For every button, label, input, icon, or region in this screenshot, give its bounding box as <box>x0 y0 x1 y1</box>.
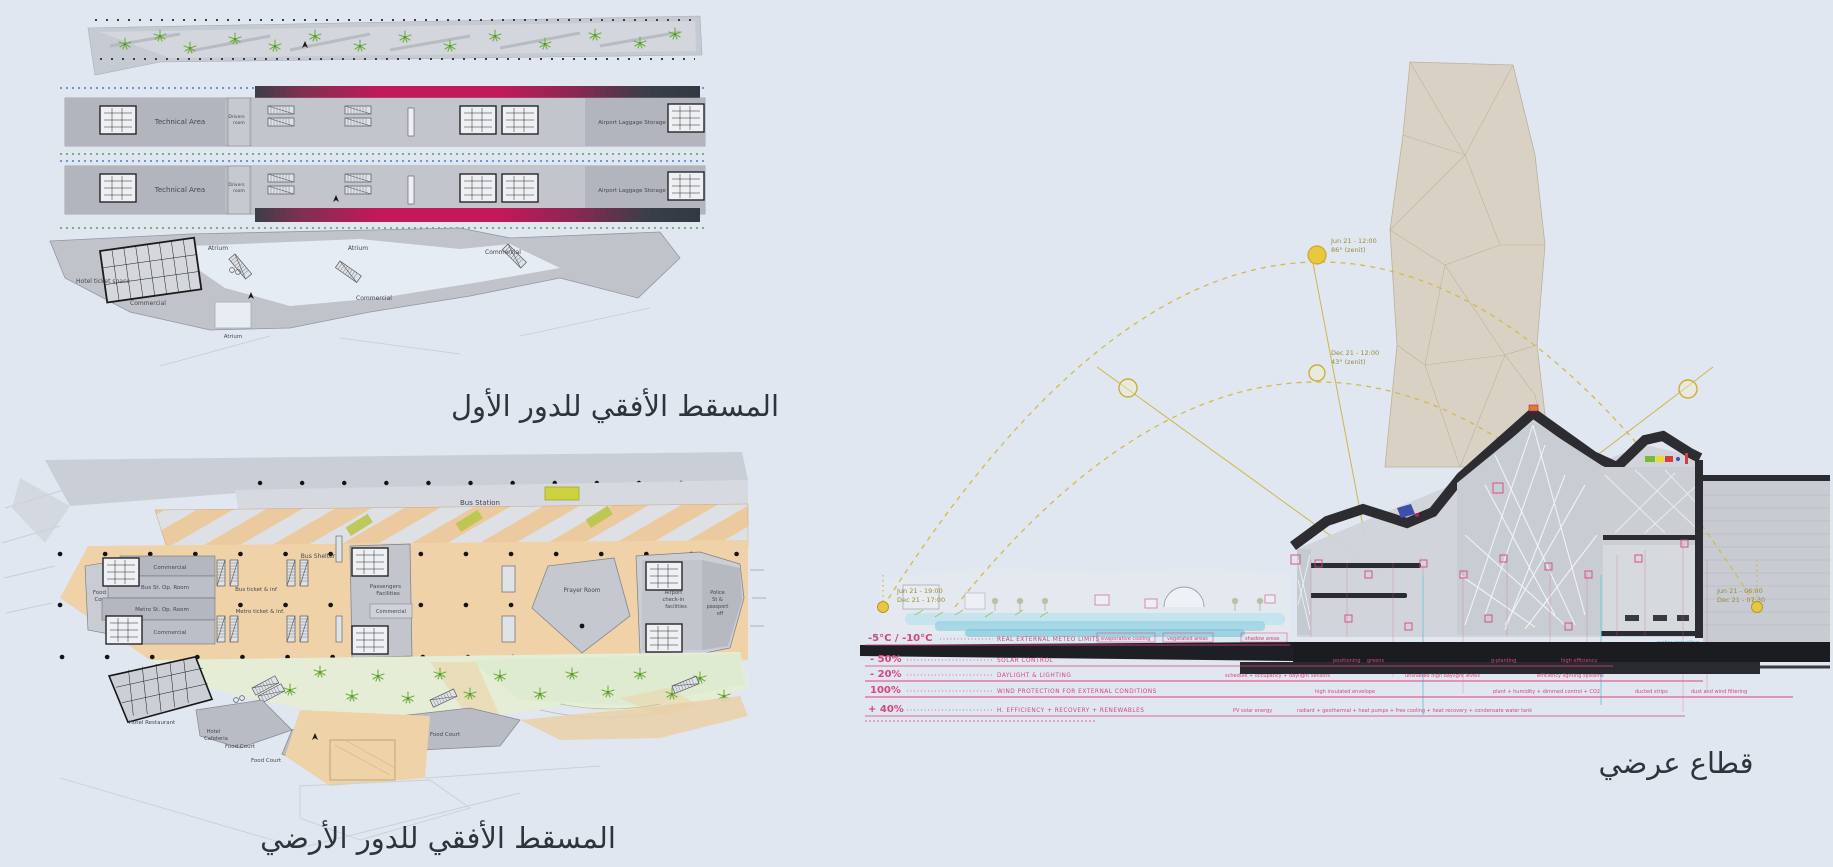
legend-tag-3c: efficiency lighting systems <box>1537 673 1604 679</box>
legend-tag-4b: plant + humidity + dimmed control + CO2 <box>1493 689 1600 695</box>
legend-value-4: 100% <box>870 685 901 696</box>
label-bus-op-room: Bus St. Op. Room <box>141 585 189 591</box>
legend-tag-5a: PV solar energy <box>1233 708 1272 714</box>
passengers-facilities-building: Passengers Facilities Commercial <box>350 544 412 658</box>
label-commercial-mid: Commercial <box>376 609 406 615</box>
platform-band-1: Technical Area Drivers room Airport Lagg… <box>65 86 705 146</box>
architectural-board: { "colors": { "paper": "#e0e7f1", "plan_… <box>0 0 1833 867</box>
sun-noon-june <box>1308 246 1326 264</box>
roof-apex-marker <box>1529 405 1538 411</box>
caption-ground-floor: المسقط الأفقي للدور الأرضي <box>260 819 616 856</box>
central-plaza <box>285 710 430 786</box>
label-food-court-2: Food Court <box>251 758 282 764</box>
legend-value-3: - 20% <box>870 669 902 680</box>
legend-value-5: + 40% <box>868 704 904 715</box>
label-luggage-1: Airport Laggage Storage <box>598 120 666 126</box>
legend-desc-4: WIND PROTECTION FOR EXTERNAL CONDITIONS <box>997 689 1157 695</box>
legend-tag-4d: dust and wind filtering <box>1691 689 1747 695</box>
label-bus-shelter: Bus Shelter <box>301 553 336 560</box>
metro-train <box>255 208 700 222</box>
legend-desc-3: DAYLIGHT & LIGHTING <box>997 673 1071 679</box>
legend-value-2: - 50% <box>870 654 902 665</box>
label-atrium-1: Atrium <box>208 245 228 252</box>
label-atrium-3: Atrium <box>224 334 242 340</box>
label-metro-op-room: Metro St. Op. Room <box>135 607 189 613</box>
legend-tag-4a: high insulated envelope <box>1315 689 1375 695</box>
sunset-sun <box>878 602 889 613</box>
bus-vehicle <box>545 487 579 500</box>
legend-tag-2c: g-planting <box>1491 658 1516 664</box>
label-bus-ticket: Bus ticket & inf <box>235 587 278 593</box>
label-sun-noon-dec: Dec 21 - 12:00 <box>1331 349 1379 357</box>
legend-tag-1b: vegetated areas <box>1167 636 1208 642</box>
sun-noon-december <box>1309 365 1325 381</box>
label-sun-east-dec: Dec 21 - 07:30 <box>1717 596 1765 604</box>
label-commercial-2: Commercial <box>356 295 392 302</box>
plaza-level: Bus Shelter Food Court Commercial Bus St… <box>60 536 766 670</box>
ground-floor-plan: Bus Station Bus Shelter Food Court Comme… <box>0 448 790 867</box>
legend-tag-1a: evaporative cooling <box>1101 636 1150 642</box>
label-bus-station: Bus Station <box>460 499 500 507</box>
legend-tag-5b: radiant + geothermal + heat pumps + free… <box>1297 708 1532 714</box>
station-offices: Food Court Commercial Bus St. Op. Room M… <box>85 556 215 644</box>
roof-garden-strip <box>88 16 702 75</box>
label-atrium-2: Atrium <box>348 245 368 252</box>
legend-tag-2a: positioning <box>1333 658 1361 664</box>
platform-band-2: Technical Area Drivers room Airport Lagg… <box>65 166 705 222</box>
airport-checkin-building: Airport check-in facilities Police St & … <box>636 552 744 654</box>
edge-ticks <box>750 570 766 626</box>
label-luggage-2: Airport Laggage Storage <box>598 188 666 194</box>
sun-marker-east <box>1679 380 1697 398</box>
legend-desc-1: REAL EXTERNAL METEO LIMITS <box>997 637 1100 643</box>
label-sun-east-jun: Jun 21 - 06:00 <box>1716 587 1763 595</box>
label-commercial-top: Commercial <box>154 565 187 571</box>
label-sun-noon-dec-angle: 43° (zenit) <box>1331 358 1366 366</box>
faceted-tower <box>1385 62 1551 467</box>
legend-tag-2b: greens <box>1367 658 1384 664</box>
legend-tag-2d: high efficiency <box>1561 658 1598 664</box>
label-commercial-3: Commercial <box>485 249 521 256</box>
legend-tag-3a: schedule + occupancy + daylight sensors <box>1225 673 1330 679</box>
cross-section: Jun 21 - 12:00 86° (zenit) Dec 21 - 12:0… <box>845 15 1833 815</box>
right-plinth <box>1703 475 1830 642</box>
label-sun-noon-jun-angle: 86° (zenit) <box>1331 246 1366 254</box>
label-commercial-1: Commercial <box>130 300 166 307</box>
concourse-level: Hotel ticket space Commercial Atrium Atr… <box>50 228 680 366</box>
label-sun-west-dec: Dec 21 - 17:00 <box>897 596 945 604</box>
label-commercial-2: Commercial <box>154 630 187 636</box>
legend-tag-4c: ducted strips <box>1635 689 1668 695</box>
legend-tag-1c: shadow areas <box>1245 636 1280 642</box>
label-technical-area-2: Technical Area <box>154 186 205 194</box>
label-prayer-room: Prayer Room <box>563 588 600 594</box>
sun-marker-west <box>1119 379 1137 397</box>
legend-tag-3b: unshaded high daylight levels <box>1405 673 1480 679</box>
label-food-court-3: Food Court <box>430 732 461 738</box>
caption-section: قطاع عرضي <box>1598 746 1753 781</box>
label-food-court-1: Food Court <box>225 744 256 750</box>
label-metro-ticket: Metro ticket & inf. <box>236 609 285 615</box>
legend-desc-5: H. EFFICIENCY + RECOVERY + RENEWABLES <box>997 708 1144 714</box>
label-hotel-ticket: Hotel ticket space <box>76 278 130 285</box>
label-sun-west-jun: Jun 21 - 19:00 <box>896 587 943 595</box>
legend-desc-2: SOLAR CONTROL <box>997 658 1054 664</box>
label-sun-noon-jun: Jun 21 - 12:00 <box>1330 237 1377 245</box>
caption-first-floor: المسقط الأفقي للدور الأول <box>451 387 779 424</box>
first-floor-plan: Technical Area Drivers room Airport Lagg… <box>40 6 780 440</box>
label-hotel-restaurant: Hotel Restaurant <box>129 720 176 726</box>
legend-value-1: -5°C / -10°C <box>868 633 932 644</box>
label-technical-area-1: Technical Area <box>154 118 205 126</box>
